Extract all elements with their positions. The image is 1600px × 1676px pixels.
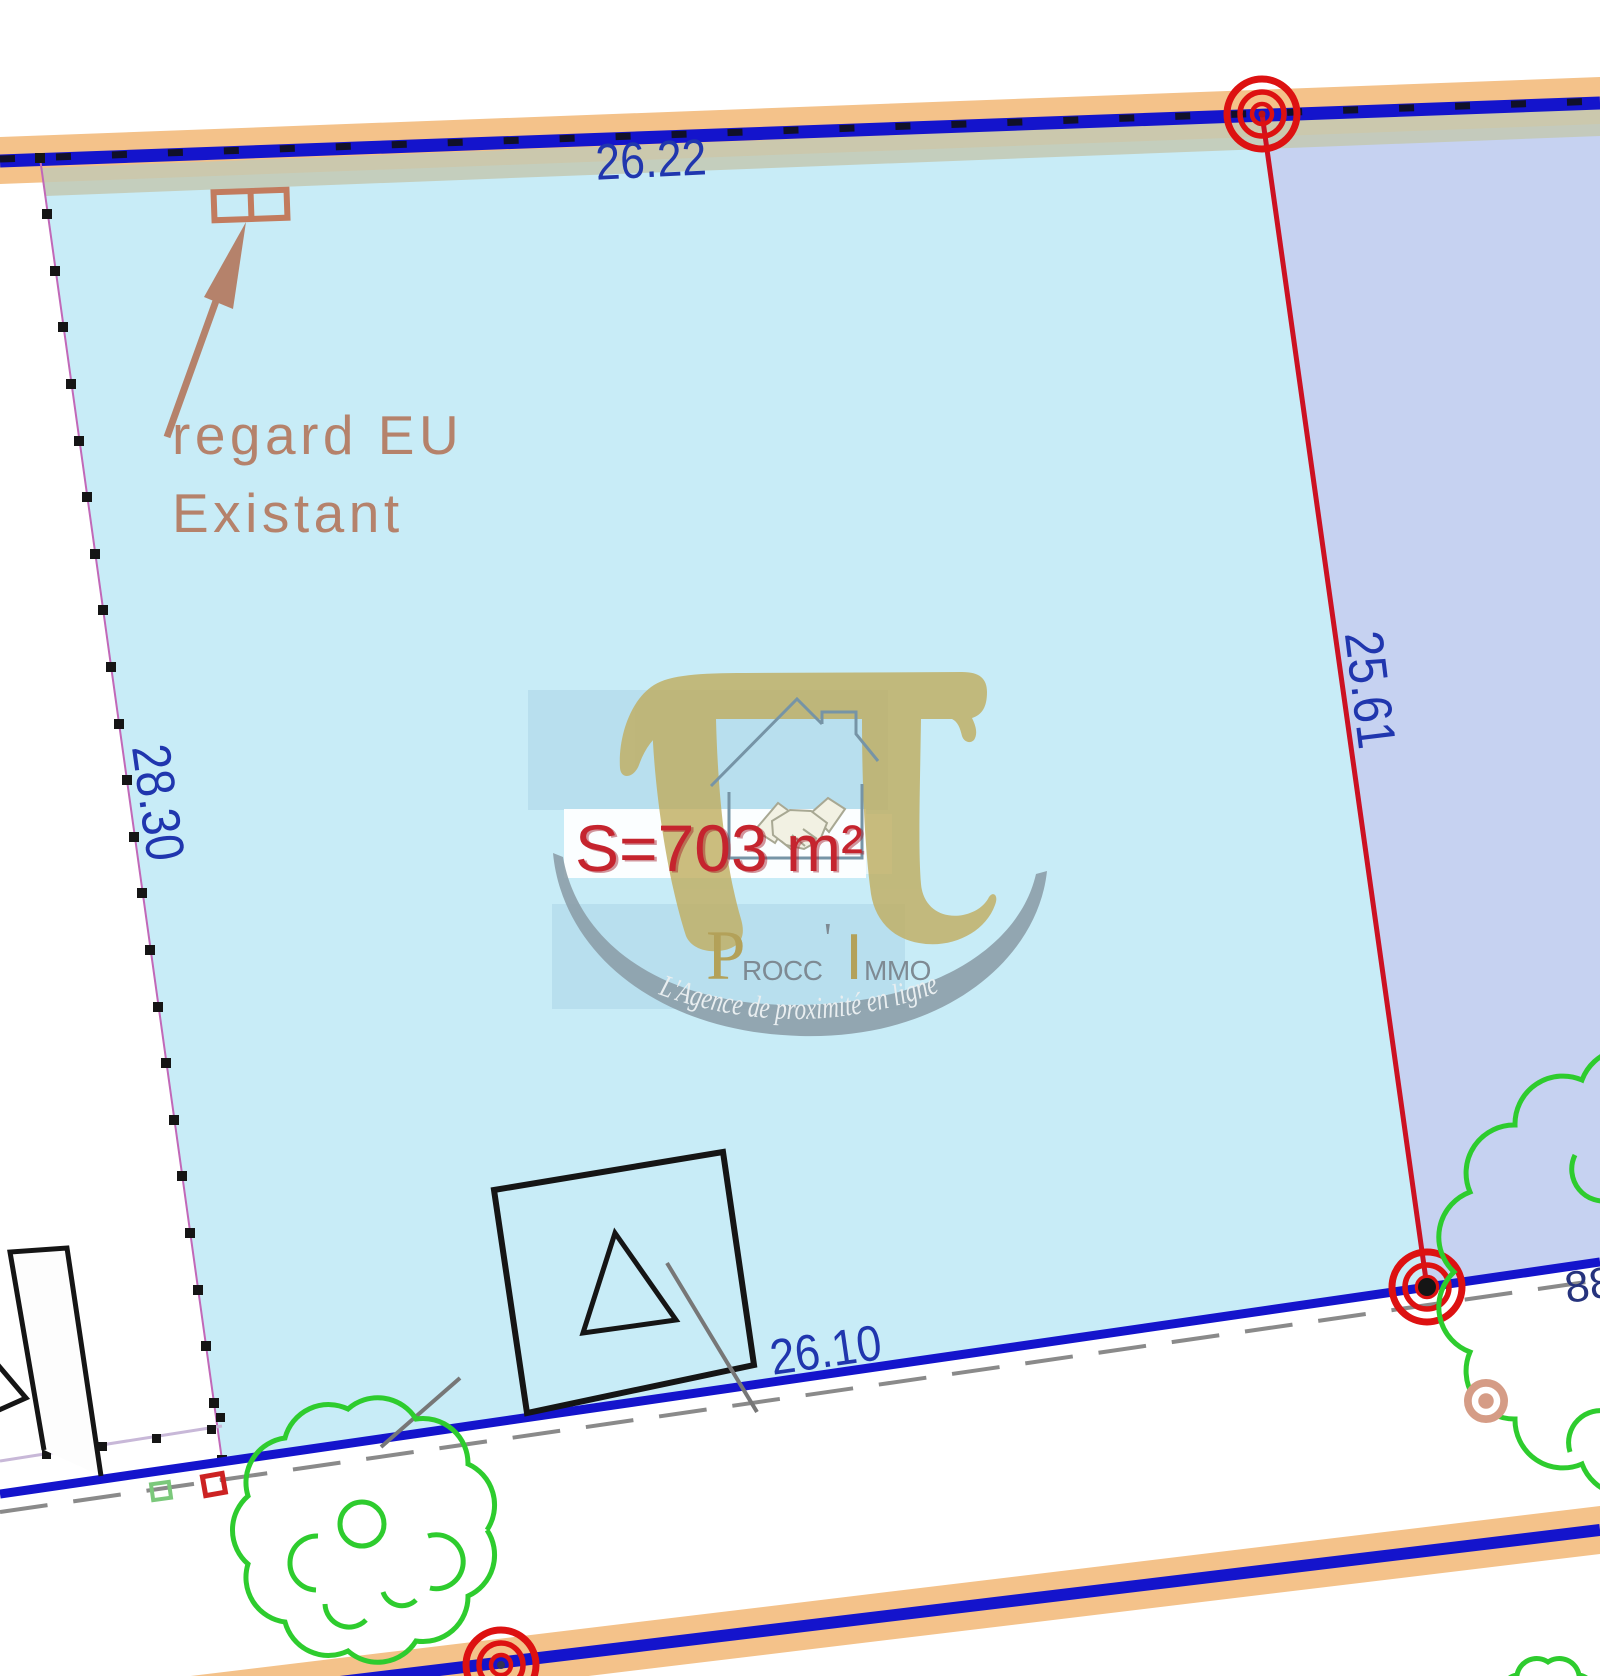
svg-text:regard EU: regard EU xyxy=(172,404,463,466)
svg-text:26.22: 26.22 xyxy=(594,128,708,190)
svg-text:88.: 88. xyxy=(1562,1256,1600,1313)
svg-text:ROCC: ROCC xyxy=(742,955,823,986)
svg-text:Existant: Existant xyxy=(172,482,404,544)
svg-text:': ' xyxy=(824,916,832,962)
svg-text:S=703 m²: S=703 m² xyxy=(575,811,863,885)
svg-text:I: I xyxy=(845,920,863,993)
